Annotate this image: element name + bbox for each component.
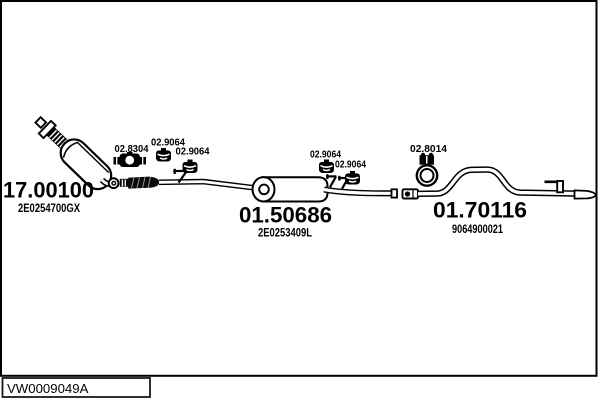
rubber-mount-icon <box>319 160 334 174</box>
oem-ref-catalytic-converter: 2E0254700GX <box>18 203 80 215</box>
pipe-clamp-icon <box>417 153 437 186</box>
fitting-label-rubber-mount: 02.9064 <box>176 146 210 158</box>
exhaust-parts-diagram: 02.8304 02.9064 02.9064 02.9064 02.9064 … <box>0 0 600 400</box>
pipe-joint-sleeve <box>403 189 419 198</box>
rubber-mount-icon <box>183 160 198 174</box>
fitting-label-flange-clamp: 02.8304 <box>115 143 149 155</box>
vehicle-code-box: VW0009049A <box>3 378 151 397</box>
part-number-centre-silencer: 01.50686 <box>239 202 332 227</box>
oem-ref-tail-pipe: 9064900021 <box>452 224 503 236</box>
part-number-catalytic-converter: 17.00100 <box>3 178 94 203</box>
tail-pipe-drawing <box>418 170 596 199</box>
centre-silencer-drawing <box>253 177 328 201</box>
rubber-mount-icon <box>345 171 360 185</box>
flex-pipe-drawing <box>120 177 160 189</box>
part-number-tail-pipe: 01.70116 <box>433 198 527 223</box>
silencer-outlet-pipe <box>324 189 397 197</box>
oem-ref-centre-silencer: 2E0253409L <box>258 228 312 240</box>
fitting-label-rubber-mount: 02.9064 <box>335 158 366 170</box>
vehicle-code-label: VW0009049A <box>7 381 89 396</box>
rubber-mount-icon <box>156 148 171 162</box>
front-pipe-drawing <box>159 182 253 188</box>
fitting-label-pipe-clamp: 02.8014 <box>410 143 447 155</box>
